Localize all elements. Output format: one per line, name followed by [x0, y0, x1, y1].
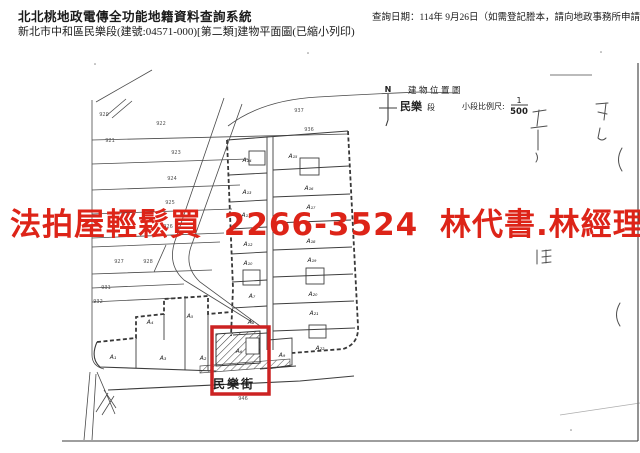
- map-frame: [62, 63, 638, 441]
- lot-label: 937: [294, 108, 304, 114]
- scale-denominator: 500: [510, 107, 528, 117]
- lot-label: 924: [167, 176, 177, 182]
- scale-label: 小段比例尺:: [462, 101, 505, 111]
- unit-label: A₁₉: [307, 257, 318, 264]
- lot-label: 923: [171, 150, 181, 156]
- unit-label: A₇: [248, 293, 256, 300]
- unit-label: A₅: [186, 313, 194, 320]
- unit-label: A₁: [109, 354, 117, 361]
- unit-label: A₁₄: [242, 157, 253, 164]
- map-title: 建物位置圖: [408, 85, 463, 96]
- section-name: 民樂: [400, 99, 423, 113]
- watermark: 法拍屋輕鬆買 2266-3524 林代書.林經理: [10, 199, 640, 244]
- lot-label: 936: [304, 127, 314, 133]
- scale-numerator: 1: [516, 96, 521, 105]
- lot-label: 932: [93, 299, 103, 305]
- map-legend: 建物位置圖 民樂 段 小段比例尺: 1 500: [400, 85, 528, 117]
- lot-label: 931: [101, 285, 111, 291]
- lot-label: 920: [99, 112, 109, 118]
- unit-label: A₂₂: [315, 345, 326, 352]
- street-lot-number: 946: [238, 396, 248, 402]
- unit-label: A₉: [278, 352, 286, 359]
- unit-label: A₄: [146, 319, 154, 326]
- unit-label: A₁₃: [242, 189, 253, 196]
- unit-label: A₂₁: [309, 310, 320, 317]
- street-name: 民樂街: [213, 376, 255, 391]
- north-label: N: [385, 85, 392, 94]
- unit-label: A₆: [235, 348, 243, 355]
- page: { "header": { "system_title": "北北桃地政電傳全功…: [0, 0, 640, 453]
- lot-label: 921: [105, 138, 115, 144]
- unit-label: A₈: [247, 319, 255, 326]
- north-arrow-icon: N: [379, 85, 397, 126]
- unit-label: A₁₅: [288, 153, 299, 160]
- unit-label: A₃: [159, 355, 167, 362]
- lot-label: 927: [114, 259, 124, 265]
- unit-label: A₂: [199, 355, 207, 362]
- section-suffix: 段: [427, 102, 435, 112]
- lot-label: 922: [156, 121, 166, 127]
- unit-label: A₁₆: [304, 185, 315, 192]
- unit-label: A₂₀: [308, 291, 319, 298]
- unit-label: A₁₀: [243, 260, 254, 267]
- lot-label: 928: [143, 259, 153, 265]
- road-hatch-marks: [84, 372, 116, 440]
